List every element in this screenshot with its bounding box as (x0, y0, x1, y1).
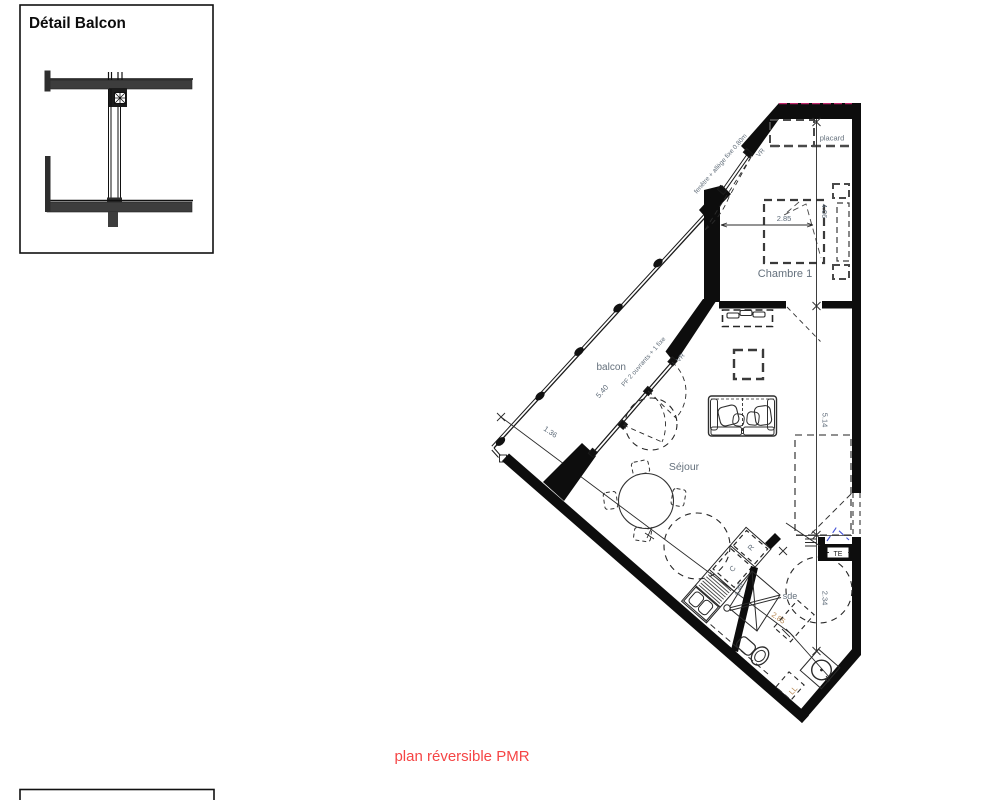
svg-text:placard: placard (820, 134, 845, 143)
svg-text:5.14: 5.14 (821, 413, 830, 428)
svg-text:Séjour: Séjour (669, 461, 700, 473)
svg-text:sde: sde (783, 591, 798, 601)
svg-text:balcon: balcon (597, 362, 626, 373)
svg-text:2.34: 2.34 (821, 591, 830, 606)
svg-text:4.06: 4.06 (820, 204, 829, 219)
svg-text:TE: TE (834, 551, 843, 558)
svg-text:plan réversible PMR: plan réversible PMR (394, 748, 529, 765)
svg-text:Chambre 1: Chambre 1 (758, 268, 812, 280)
svg-text:Détail Balcon: Détail Balcon (29, 15, 126, 32)
svg-text:2.85: 2.85 (777, 214, 792, 223)
